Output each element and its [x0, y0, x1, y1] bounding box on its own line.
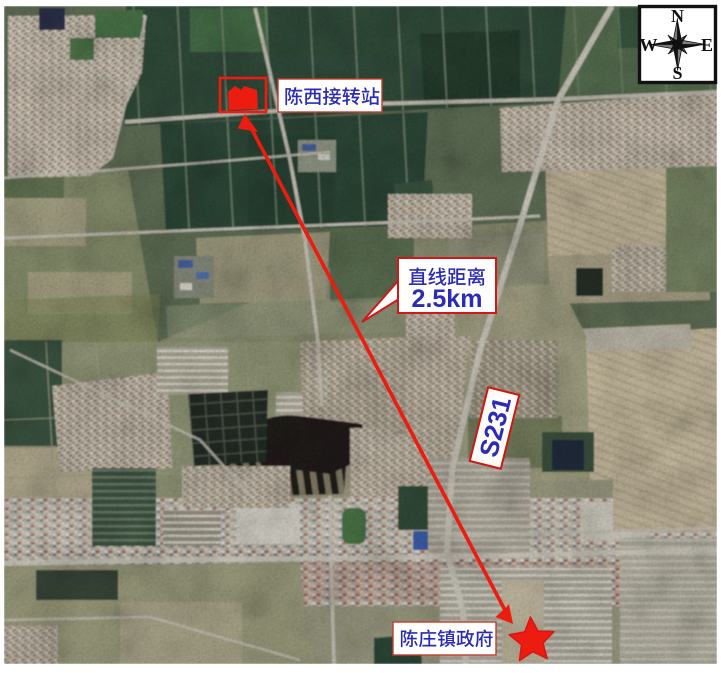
- svg-text:W: W: [640, 35, 658, 55]
- svg-text:E: E: [701, 35, 713, 55]
- svg-text:N: N: [671, 6, 684, 26]
- svg-text:2.5km: 2.5km: [412, 285, 483, 313]
- svg-text:S: S: [672, 63, 682, 83]
